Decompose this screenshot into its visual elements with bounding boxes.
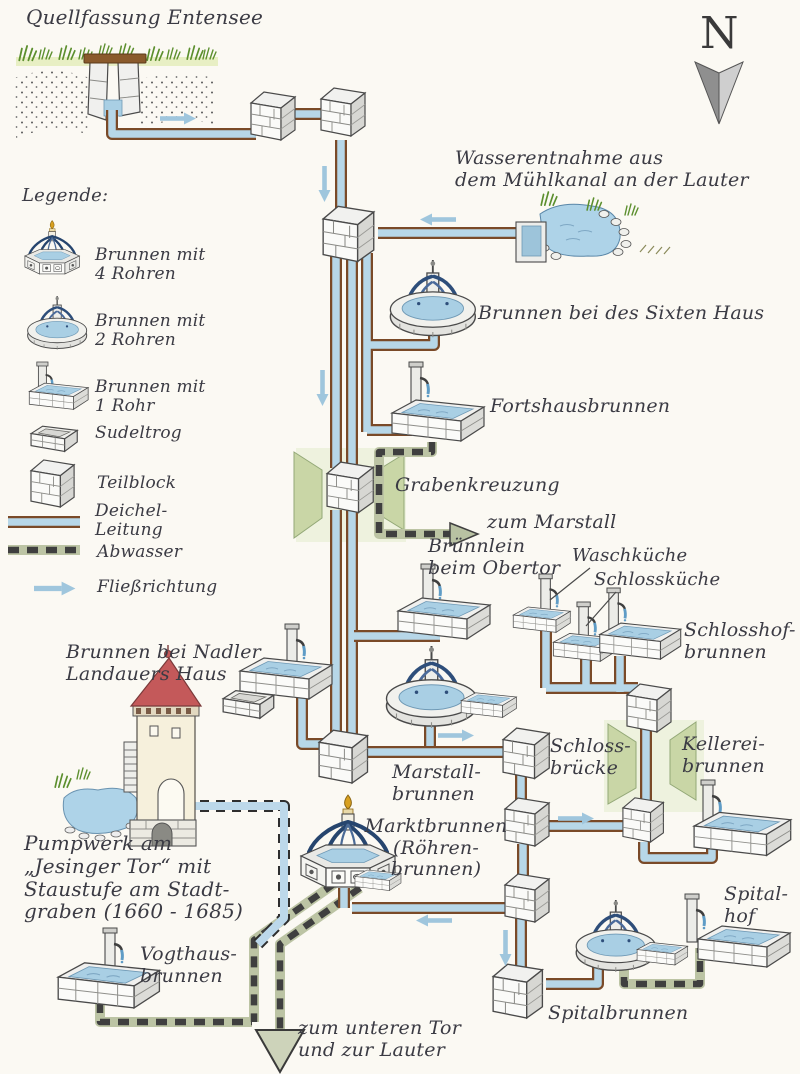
label-nadler-haus: Brunnen bei Nadler Landauers Haus: [66, 642, 261, 685]
flow-arrow-icon: [317, 370, 329, 406]
flow-arrow-icon: [500, 930, 512, 966]
legend-icons: [8, 221, 88, 596]
label-zum-marstall: zum Marstall: [487, 512, 616, 534]
label-sixten-haus: Brunnen bei des Sixten Haus: [478, 303, 764, 325]
legend-item-brunnen-4: Brunnen mit 4 Rohren: [95, 246, 205, 285]
teilblock-icon: [503, 728, 549, 778]
fountain-4-pipes-icon: [25, 221, 80, 274]
legend-item-brunnen-2: Brunnen mit 2 Rohren: [95, 312, 205, 351]
label-fortshausbrunnen: Fortshausbrunnen: [490, 396, 670, 418]
legend-item-teilblock: Teilblock: [97, 474, 176, 493]
teilblock-icon: [323, 206, 374, 261]
north-arrow-icon: [695, 62, 743, 124]
label-schlossbruecke: Schloss- brücke: [550, 736, 631, 779]
fliessrichtung-icon: [34, 582, 75, 596]
flow-arrow-icon: [416, 915, 452, 927]
fortshaus-fountain: [392, 362, 484, 441]
flow-arrow-icon: [438, 730, 474, 742]
trough-fountain-icon: [461, 693, 516, 718]
teilblock-icon: [31, 460, 74, 507]
label-spitalhof: Spital- hof: [724, 884, 788, 927]
historic-water-supply-diagram: Quellfassung Entensee Legende: Brunnen m…: [0, 0, 800, 1074]
legend-item-fliessrichtung: Fließrichtung: [97, 578, 217, 597]
trough-fountain-icon: [694, 812, 791, 855]
legend-item-deichel: Deichel- Leitung: [95, 502, 167, 541]
page-title: Quellfassung Entensee: [26, 6, 263, 29]
north-label: N: [700, 8, 739, 59]
trough-fountain-icon: [513, 607, 570, 632]
schlosshof-fountain: [600, 588, 681, 659]
spital-fountain: [576, 900, 688, 972]
trough-fountain-icon: [600, 623, 681, 659]
sixten-haus-fountain: [390, 260, 475, 337]
label-spitalbrunnen: Spitalbrunnen: [548, 1003, 688, 1025]
label-bruennlein-obertor: Brünnlein beim Obertor: [428, 536, 560, 579]
flow-arrow-icon: [319, 166, 331, 202]
legend-item-sudeltrog: Sudeltrog: [95, 424, 182, 443]
mill-canal-intake-drawing: [539, 192, 670, 260]
teilblock-icon: [623, 798, 663, 842]
zum-unteren-tor-arrow-icon: [256, 1030, 304, 1072]
label-vogthausbrunnen: Vogthaus- brunnen: [140, 944, 237, 987]
label-marktbrunnen: Marktbrunnen (Röhren- brunnen): [356, 816, 516, 881]
label-marstallbrunnen: Marstall- brunnen: [392, 762, 481, 805]
label-kellereibrunnen: Kellerei- brunnen: [682, 734, 765, 777]
round-fountain-icon: [387, 646, 477, 728]
sudeltrog-icon: [223, 691, 274, 719]
label-schlosshofbrunnen: Schlosshof- brunnen: [684, 620, 796, 663]
flow-arrow-icon: [420, 214, 456, 226]
teilblock-icon: [627, 684, 671, 732]
label-zum-unteren-tor: zum unteren Tor und zur Lauter: [298, 1018, 461, 1061]
label-wasserentnahme: Wasserentnahme aus dem Mühlkanal an der …: [455, 148, 749, 191]
trough-fountain-icon: [392, 400, 484, 441]
legend-item-abwasser: Abwasser: [97, 543, 182, 562]
trough-fountain-icon: [698, 926, 790, 967]
pillar-icon: [685, 894, 705, 942]
teilblock-icon: [327, 462, 373, 512]
teilblock-icon: [321, 88, 365, 136]
waschkueche-fountain: [513, 574, 570, 632]
label-schlosskueche: Schlossküche: [594, 570, 720, 591]
sudeltrog-icon: [31, 426, 77, 451]
label-pumpwerk: Pumpwerk am „Jesinger Tor“ mit Staustufe…: [24, 832, 243, 923]
trough-fountain-icon: [398, 598, 490, 639]
marstall-fountain: [387, 646, 517, 728]
fountain-1-pipe-icon: [29, 383, 88, 409]
teilblock-icon: [493, 964, 542, 1018]
legend-item-brunnen-1: Brunnen mit 1 Rohr: [95, 378, 205, 417]
teilblock-icon: [319, 730, 367, 783]
label-grabenkreuzung: Grabenkreuzung: [395, 475, 560, 497]
kellerei-fountain: [694, 780, 791, 855]
label-waschkueche: Waschküche: [572, 546, 687, 567]
trough-fountain-icon: [637, 942, 688, 965]
mill-canal-outlet-box: [516, 222, 546, 262]
teilblock-icon: [505, 874, 549, 922]
legend-heading: Legende:: [22, 186, 108, 207]
round-fountain-icon: [390, 260, 475, 337]
fountain-2-pipes-icon: [28, 296, 87, 350]
teilblock-icon: [251, 92, 295, 140]
